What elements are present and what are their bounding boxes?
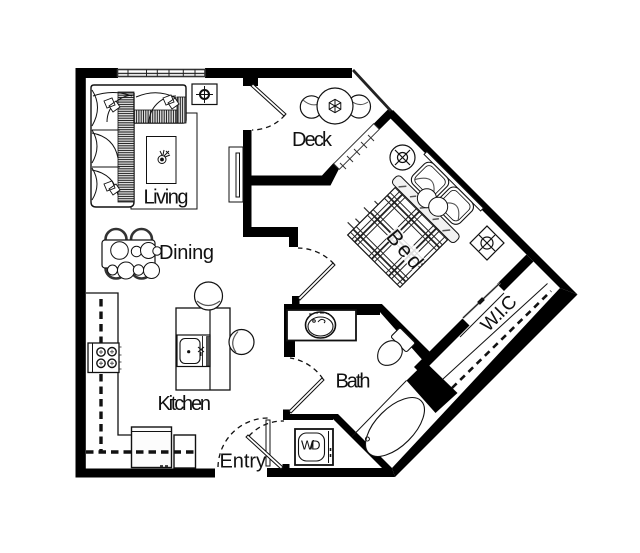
svg-text:Deck: Deck (292, 129, 333, 151)
svg-text:Entry: Entry (220, 451, 267, 473)
svg-text:W/D: W/D (301, 438, 321, 453)
svg-text:Living: Living (144, 187, 189, 209)
svg-text:Kitchen: Kitchen (158, 393, 212, 415)
svg-text:Bath: Bath (336, 371, 371, 393)
svg-text:Dining: Dining (159, 242, 214, 264)
